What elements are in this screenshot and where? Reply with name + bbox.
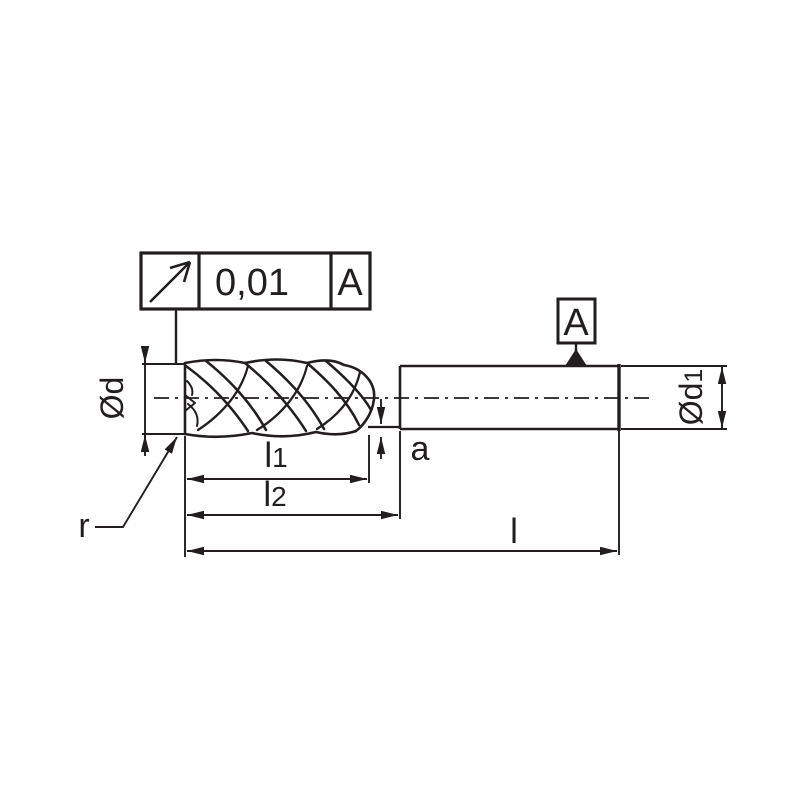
runout-icon	[150, 262, 190, 302]
length-extension-lines	[185, 431, 619, 557]
drawing-canvas: 0,01 A A	[0, 0, 800, 800]
dim-cutting-diameter	[142, 347, 186, 456]
tolerance-value: 0,01	[215, 262, 289, 304]
datum-letter: A	[563, 302, 589, 344]
label-shank-diameter: Ød1	[673, 369, 709, 426]
end-teeth-detail	[185, 381, 198, 426]
label-flute-length: l1	[264, 436, 287, 475]
label-neck-length: l2	[263, 475, 286, 514]
svg-text:Ød: Ød	[94, 377, 130, 420]
radius-leader-line	[95, 437, 177, 527]
technical-drawing: 0,01 A A	[0, 0, 800, 800]
label-overall-length: l	[510, 512, 518, 551]
label-cutting-diameter: Ød	[94, 377, 130, 420]
flute-helix-lines	[186, 361, 371, 431]
tolerance-datum-ref: A	[337, 262, 363, 304]
label-corner-radius: r	[78, 507, 89, 545]
datum-triangle-icon	[565, 349, 587, 366]
label-radial-step: a	[411, 430, 430, 468]
svg-text:Ød1: Ød1	[673, 369, 709, 426]
